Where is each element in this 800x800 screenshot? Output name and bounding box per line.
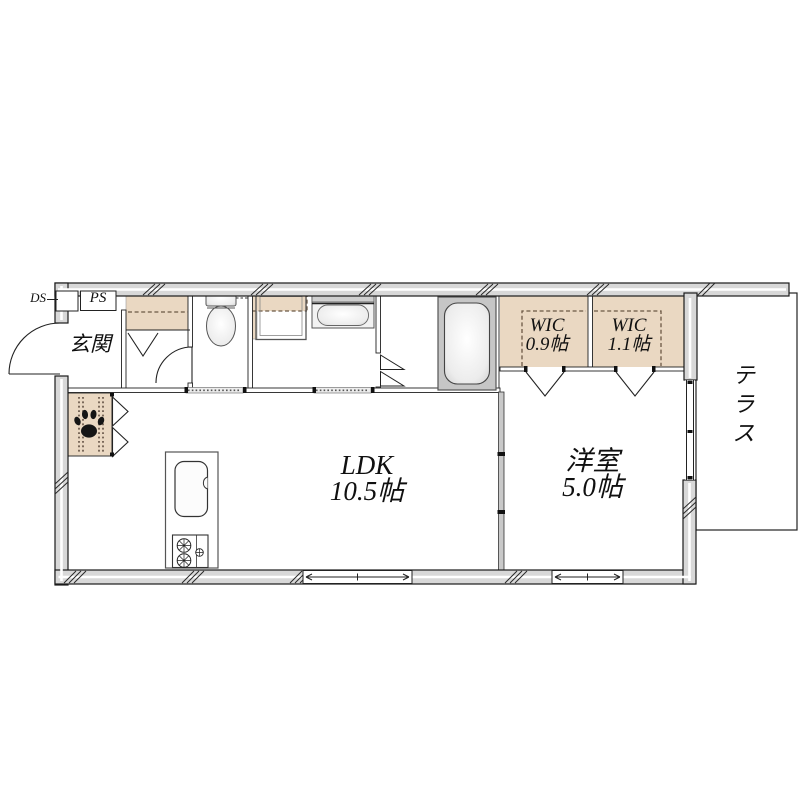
floor-plan-drawing: [0, 0, 800, 800]
background: [0, 0, 800, 800]
ldk-label: LDK 10.5帖: [293, 452, 441, 504]
entry-closet: [126, 292, 188, 330]
floor-plan: DS PS 玄関 WIC 0.9帖 WIC 1.1帖 LDK 10.5帖 洋室 …: [0, 0, 800, 800]
ds-label: DS: [12, 291, 46, 304]
kitchen-counter: [166, 452, 219, 568]
ldk-size: 10.5帖: [293, 478, 441, 504]
kitchen-sink: [175, 462, 208, 517]
terrace-label: テラス: [729, 363, 752, 450]
wic-large-label: WIC 1.1帖: [586, 316, 672, 355]
toilet-right-wall: [248, 296, 253, 392]
wic-small-size: 0.9帖: [504, 335, 590, 354]
gas-stove: [173, 535, 209, 568]
ldk-name: LDK: [293, 452, 441, 478]
wic-small-label: WIC 0.9帖: [504, 316, 590, 355]
service-area-wall: [68, 388, 500, 393]
wic-large-name: WIC: [586, 316, 672, 335]
ds-box: [56, 291, 78, 311]
western-room-name: 洋室: [524, 448, 661, 474]
ps-label: PS: [80, 291, 116, 306]
room-partition: [498, 392, 506, 570]
bathtub: [438, 297, 496, 390]
western-room-size: 5.0帖: [524, 474, 661, 500]
vanity-sink: [312, 294, 374, 328]
wic-large-size: 1.1帖: [586, 335, 672, 354]
wic-small-name: WIC: [504, 316, 590, 335]
western-room-label: 洋室 5.0帖: [524, 448, 661, 500]
entrance-label: 玄関: [57, 334, 123, 355]
